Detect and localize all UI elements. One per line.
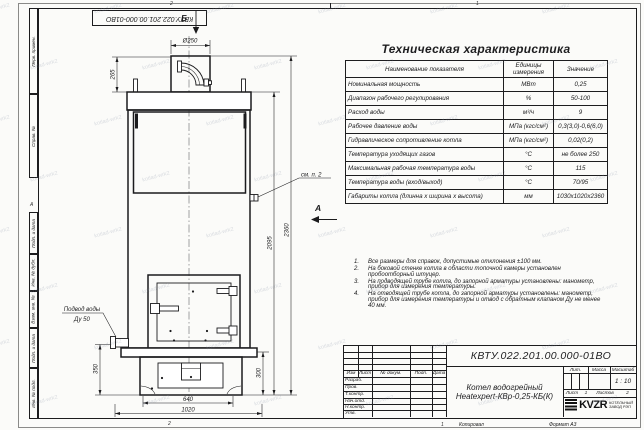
param-unit: МВт	[504, 78, 554, 92]
list-item: 4.На отводящей трубе котла, до запорной …	[351, 292, 607, 309]
param-value: 1030х1020х2360	[554, 190, 608, 204]
mass-label: Масса	[588, 367, 610, 373]
dim-label: 350	[94, 363, 100, 374]
list-item: 1.Все размеры для справок, допустимые от…	[351, 260, 607, 266]
spec-header: Значение	[554, 61, 608, 78]
door-hinge	[217, 289, 230, 294]
dim-label: 640	[183, 397, 194, 403]
view-a-label: А	[314, 203, 321, 213]
spec-table-title: Техническая характеристика	[345, 42, 607, 56]
dim-base-height: 300	[257, 352, 270, 395]
grid-line	[432, 346, 433, 417]
flue-elbow	[178, 61, 212, 86]
furnace-door	[148, 275, 240, 350]
param-unit: °С	[504, 148, 554, 162]
table-row: Рабочее давление водыМПа (кгс/см²)0,3(3,…	[346, 120, 608, 134]
grid-line	[579, 373, 580, 389]
dim-label: 2360	[285, 223, 291, 238]
param-name: Диапазон рабочего регулирования	[346, 92, 504, 106]
param-value: 0,02(0,2)	[554, 134, 608, 148]
view-a-arrow-icon: А	[311, 203, 337, 223]
scale-value: 1 : 10	[610, 373, 636, 389]
top-stud	[134, 79, 138, 92]
dim-chimney-dia: Ø250	[171, 39, 210, 55]
dim-label: 300	[257, 367, 263, 378]
param-value: 115	[554, 162, 608, 176]
table-row: Номинальная мощностьМВт0,25	[346, 78, 608, 92]
company-logo: KVZR КОТЕЛЬНЫЙ ЗАВОД РЭП	[563, 394, 635, 416]
param-name: Расход воды	[346, 106, 504, 120]
param-value: 0,3(3,0)-0,6(6,0)	[554, 120, 608, 134]
param-value: не более 250	[554, 148, 608, 162]
note-number: 3.	[351, 280, 368, 291]
table-row: Диапазон рабочего регулирования%50-100	[346, 92, 608, 106]
param-value: 70/95	[554, 176, 608, 190]
param-unit: °С	[504, 176, 554, 190]
table-row: Гидравлическое сопротивление котлаМПа (к…	[346, 134, 608, 148]
table-row: Максимальная рабочая температура воды°С1…	[346, 162, 608, 176]
dim-label: 265	[111, 69, 117, 81]
note-text: На отводящей трубе котла, до запорной ар…	[368, 292, 607, 309]
grid-line	[372, 346, 373, 417]
note-number: 2.	[351, 267, 368, 278]
param-name: Гидравлическое сопротивление котла	[346, 134, 504, 148]
bottom-plate	[121, 348, 257, 357]
lit-label: Лит.	[563, 367, 588, 373]
table-row: Температура воды (вход/выход)°С70/95	[346, 176, 608, 190]
company-name-line2: ЗАВОД РЭП	[609, 405, 633, 409]
list-item: 2.На боковой стенке котла в области топо…	[351, 267, 607, 278]
spec-header-row: Наименование показателя Единицы измерени…	[346, 61, 608, 78]
product-name-line1: Котел водогрейный	[466, 383, 542, 393]
callout-label: см. п. 2	[301, 173, 322, 179]
staff-row-label: Разраб.	[345, 377, 372, 384]
dim-total-width: 1020	[115, 404, 262, 417]
doc-number: КВТУ.022.201.00.000-01ВО	[446, 346, 636, 366]
grid-line	[344, 364, 446, 365]
param-name: Температура воды (вход/выход)	[346, 176, 504, 190]
rev-header: Дата	[432, 370, 446, 377]
spec-table: Наименование показателя Единицы измерени…	[345, 60, 608, 204]
grid-line	[410, 346, 411, 417]
note-text: Все размеры для справок, допустимые откл…	[368, 260, 607, 266]
door-handle	[151, 304, 160, 314]
param-unit: %	[504, 92, 554, 106]
param-name: Температура уходящих газов	[346, 148, 504, 162]
door-hinge	[229, 326, 237, 335]
param-unit: °С	[504, 162, 554, 176]
boiler-top-section	[127, 92, 251, 110]
door-hinge	[217, 328, 230, 333]
dim-label: 1020	[181, 408, 195, 414]
dim-label: 2095	[268, 236, 274, 251]
param-value: 50-100	[554, 92, 608, 106]
rev-header: № докум.	[372, 370, 410, 377]
door-handle	[160, 306, 179, 311]
note-text: На подводящей трубе котла, до запорной а…	[368, 280, 607, 291]
param-value: 0,25	[554, 78, 608, 92]
note-number: 1.	[351, 260, 368, 266]
list-item: 3.На подводящей трубе котла, до запорной…	[351, 280, 607, 291]
kvzr-logo-text: KVZR	[579, 399, 607, 411]
upper-panel	[134, 112, 247, 193]
chimney-collar	[171, 56, 210, 92]
view-b-arrow-icon: Б	[181, 11, 199, 34]
title-block: Изм Лист № докум. Подп. Дата Разраб. Про…	[343, 345, 637, 419]
base-pedestal	[140, 357, 242, 395]
param-name: Номинальная мощность	[346, 78, 504, 92]
table-row: Габариты котла (длинна х ширина х высота…	[346, 190, 608, 204]
door-hinge	[229, 287, 237, 296]
kvzr-logo-icon	[565, 399, 577, 411]
staff-row-label: Пров.	[345, 384, 372, 391]
drawing-sheet: 2 1 2 1 А Копировал Формат А3 Перв. прим…	[0, 0, 644, 430]
param-name: Габариты котла (длинна х ширина х высота…	[346, 190, 504, 204]
staff-row-label: Утв.	[345, 410, 372, 417]
param-unit: МПа (кгс/см²)	[504, 134, 554, 148]
notes-list: 1.Все размеры для справок, допустимые от…	[351, 260, 607, 311]
staff-row-label: Т.контр.	[345, 391, 372, 398]
water-inlet: Подвод воды Ду 50	[62, 307, 129, 349]
callout-note2: см. п. 2	[250, 173, 331, 202]
dim-opening-width: 640	[143, 396, 233, 407]
table-row: Температура уходящих газов°Сне более 250	[346, 148, 608, 162]
param-value: 9	[554, 106, 608, 120]
spec-header: Единицы измерения	[504, 61, 554, 78]
param-name: Максимальная рабочая температура воды	[346, 162, 504, 176]
water-supply-dn: Ду 50	[73, 317, 90, 323]
view-b-label: Б	[181, 13, 187, 23]
rev-header: Изм	[344, 370, 358, 377]
dim-label: Ø250	[182, 39, 198, 45]
note-text: На боковой стенке котла в области топочн…	[368, 267, 607, 278]
spec-header: Наименование показателя	[346, 61, 504, 78]
rev-header: Лист	[358, 370, 372, 377]
dim-chimney-height: 265	[111, 57, 172, 92]
table-row: Расход водым³/ч9	[346, 106, 608, 120]
grid-line	[571, 373, 572, 389]
rev-header: Подп.	[410, 370, 432, 377]
water-supply-label: Подвод воды	[64, 307, 101, 313]
product-name-line2: Heatexpert-КВр-0,25-КБ(К)	[456, 392, 553, 402]
param-name: Рабочее давление воды	[346, 120, 504, 134]
note-number: 4.	[351, 292, 368, 309]
product-name: Котел водогрейный Heatexpert-КВр-0,25-КБ…	[446, 367, 563, 417]
grid-line	[344, 358, 446, 359]
top-stud	[242, 79, 246, 92]
param-unit: м³/ч	[504, 106, 554, 120]
param-unit: МПа (кгс/см²)	[504, 120, 554, 134]
param-unit: мм	[504, 190, 554, 204]
grid-line	[344, 352, 446, 353]
